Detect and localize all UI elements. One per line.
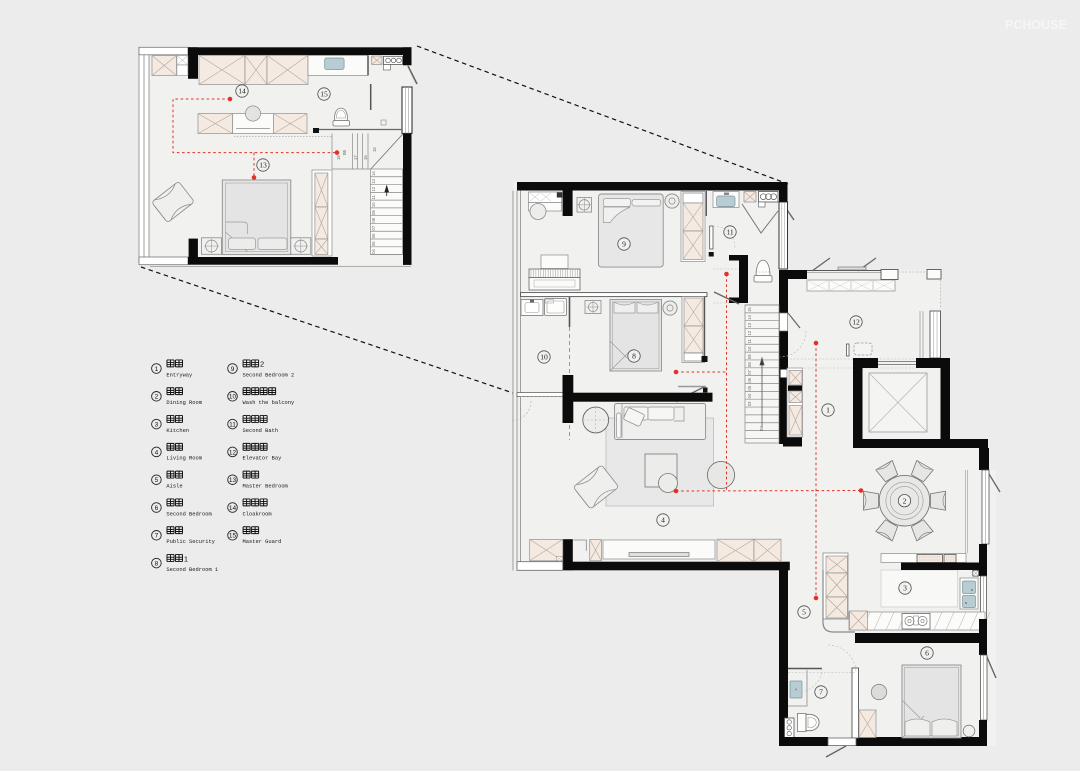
- svg-text:08: 08: [747, 362, 752, 367]
- svg-text:Living Room: Living Room: [166, 456, 202, 462]
- svg-text:13: 13: [371, 178, 376, 183]
- svg-text:9: 9: [231, 366, 235, 373]
- svg-text:1: 1: [155, 366, 159, 373]
- svg-text:Second Bath: Second Bath: [243, 428, 279, 434]
- svg-text:Entryway: Entryway: [166, 372, 193, 378]
- svg-text:10: 10: [540, 353, 548, 362]
- svg-text:Public Security: Public Security: [166, 539, 215, 545]
- svg-text:14: 14: [229, 505, 237, 512]
- svg-text:Wash the balcony: Wash the balcony: [243, 400, 296, 406]
- svg-text:Aisle: Aisle: [166, 484, 182, 490]
- svg-text:Elevator Bay: Elevator Bay: [243, 456, 283, 462]
- svg-text:4: 4: [661, 516, 665, 525]
- svg-text:05: 05: [747, 385, 752, 390]
- svg-text:PCHOUSE: PCHOUSE: [1005, 18, 1067, 32]
- svg-text:13: 13: [259, 161, 267, 170]
- svg-text:12: 12: [852, 318, 860, 327]
- svg-text:15: 15: [747, 307, 752, 312]
- svg-text:07: 07: [371, 225, 376, 230]
- svg-text:17: 17: [353, 155, 358, 160]
- svg-text:13: 13: [747, 322, 752, 327]
- svg-text:14: 14: [371, 171, 376, 176]
- svg-text:16: 16: [363, 155, 368, 160]
- svg-text:9: 9: [622, 240, 626, 249]
- svg-text:Cloakroom: Cloakroom: [243, 511, 272, 517]
- svg-text:15: 15: [229, 533, 237, 540]
- svg-text:5: 5: [802, 608, 806, 617]
- svg-text:2: 2: [260, 360, 264, 369]
- svg-text:11: 11: [726, 228, 734, 237]
- svg-text:11: 11: [229, 422, 236, 429]
- svg-text:7: 7: [155, 533, 159, 540]
- svg-text:08: 08: [371, 217, 376, 222]
- svg-text:8: 8: [155, 561, 159, 568]
- svg-text:05: 05: [371, 241, 376, 246]
- svg-text:1: 1: [184, 554, 188, 563]
- svg-text:5: 5: [155, 477, 159, 484]
- svg-text:15: 15: [372, 147, 377, 152]
- svg-text:2: 2: [155, 394, 159, 401]
- svg-text:6: 6: [155, 505, 159, 512]
- svg-text:12: 12: [371, 186, 376, 191]
- svg-text:4: 4: [155, 449, 159, 456]
- svg-text:09: 09: [747, 354, 752, 359]
- svg-text:7: 7: [819, 688, 823, 697]
- svg-text:15: 15: [320, 90, 328, 99]
- svg-text:06: 06: [371, 233, 376, 238]
- svg-text:04: 04: [747, 393, 752, 398]
- svg-text:Dining Room: Dining Room: [166, 400, 202, 406]
- svg-text:06: 06: [747, 377, 752, 382]
- svg-text:04: 04: [759, 425, 764, 431]
- svg-text:10: 10: [229, 394, 237, 401]
- svg-text:14: 14: [747, 315, 752, 320]
- svg-text:1: 1: [826, 406, 830, 415]
- svg-text:3: 3: [155, 422, 159, 429]
- svg-text:Second Bedroom 1: Second Bedroom 1: [166, 567, 218, 573]
- svg-text:12: 12: [229, 449, 237, 456]
- svg-text:11: 11: [371, 194, 376, 199]
- svg-text:3: 3: [903, 584, 907, 593]
- svg-text:04: 04: [371, 248, 376, 253]
- svg-text:03: 03: [747, 401, 752, 406]
- svg-text:2: 2: [903, 496, 907, 505]
- svg-text:Master Bedroom: Master Bedroom: [243, 484, 288, 490]
- svg-text:14: 14: [238, 87, 246, 96]
- svg-text:07: 07: [747, 369, 752, 374]
- svg-text:12: 12: [747, 330, 752, 335]
- svg-text:18: 18: [336, 155, 341, 160]
- svg-text:11: 11: [747, 338, 752, 343]
- svg-text:Kitchen: Kitchen: [166, 428, 189, 434]
- svg-text:6: 6: [925, 649, 929, 658]
- svg-text:Second Bedroom 2: Second Bedroom 2: [243, 372, 295, 378]
- svg-text:Master Guard: Master Guard: [243, 539, 282, 545]
- svg-text:8: 8: [632, 352, 636, 361]
- svg-text:09: 09: [371, 210, 376, 215]
- svg-text:10: 10: [371, 202, 376, 207]
- svg-text:10: 10: [747, 346, 752, 351]
- svg-text:05: 05: [342, 149, 347, 155]
- svg-text:13: 13: [229, 477, 237, 484]
- svg-text:Second Bedroom: Second Bedroom: [166, 511, 211, 517]
